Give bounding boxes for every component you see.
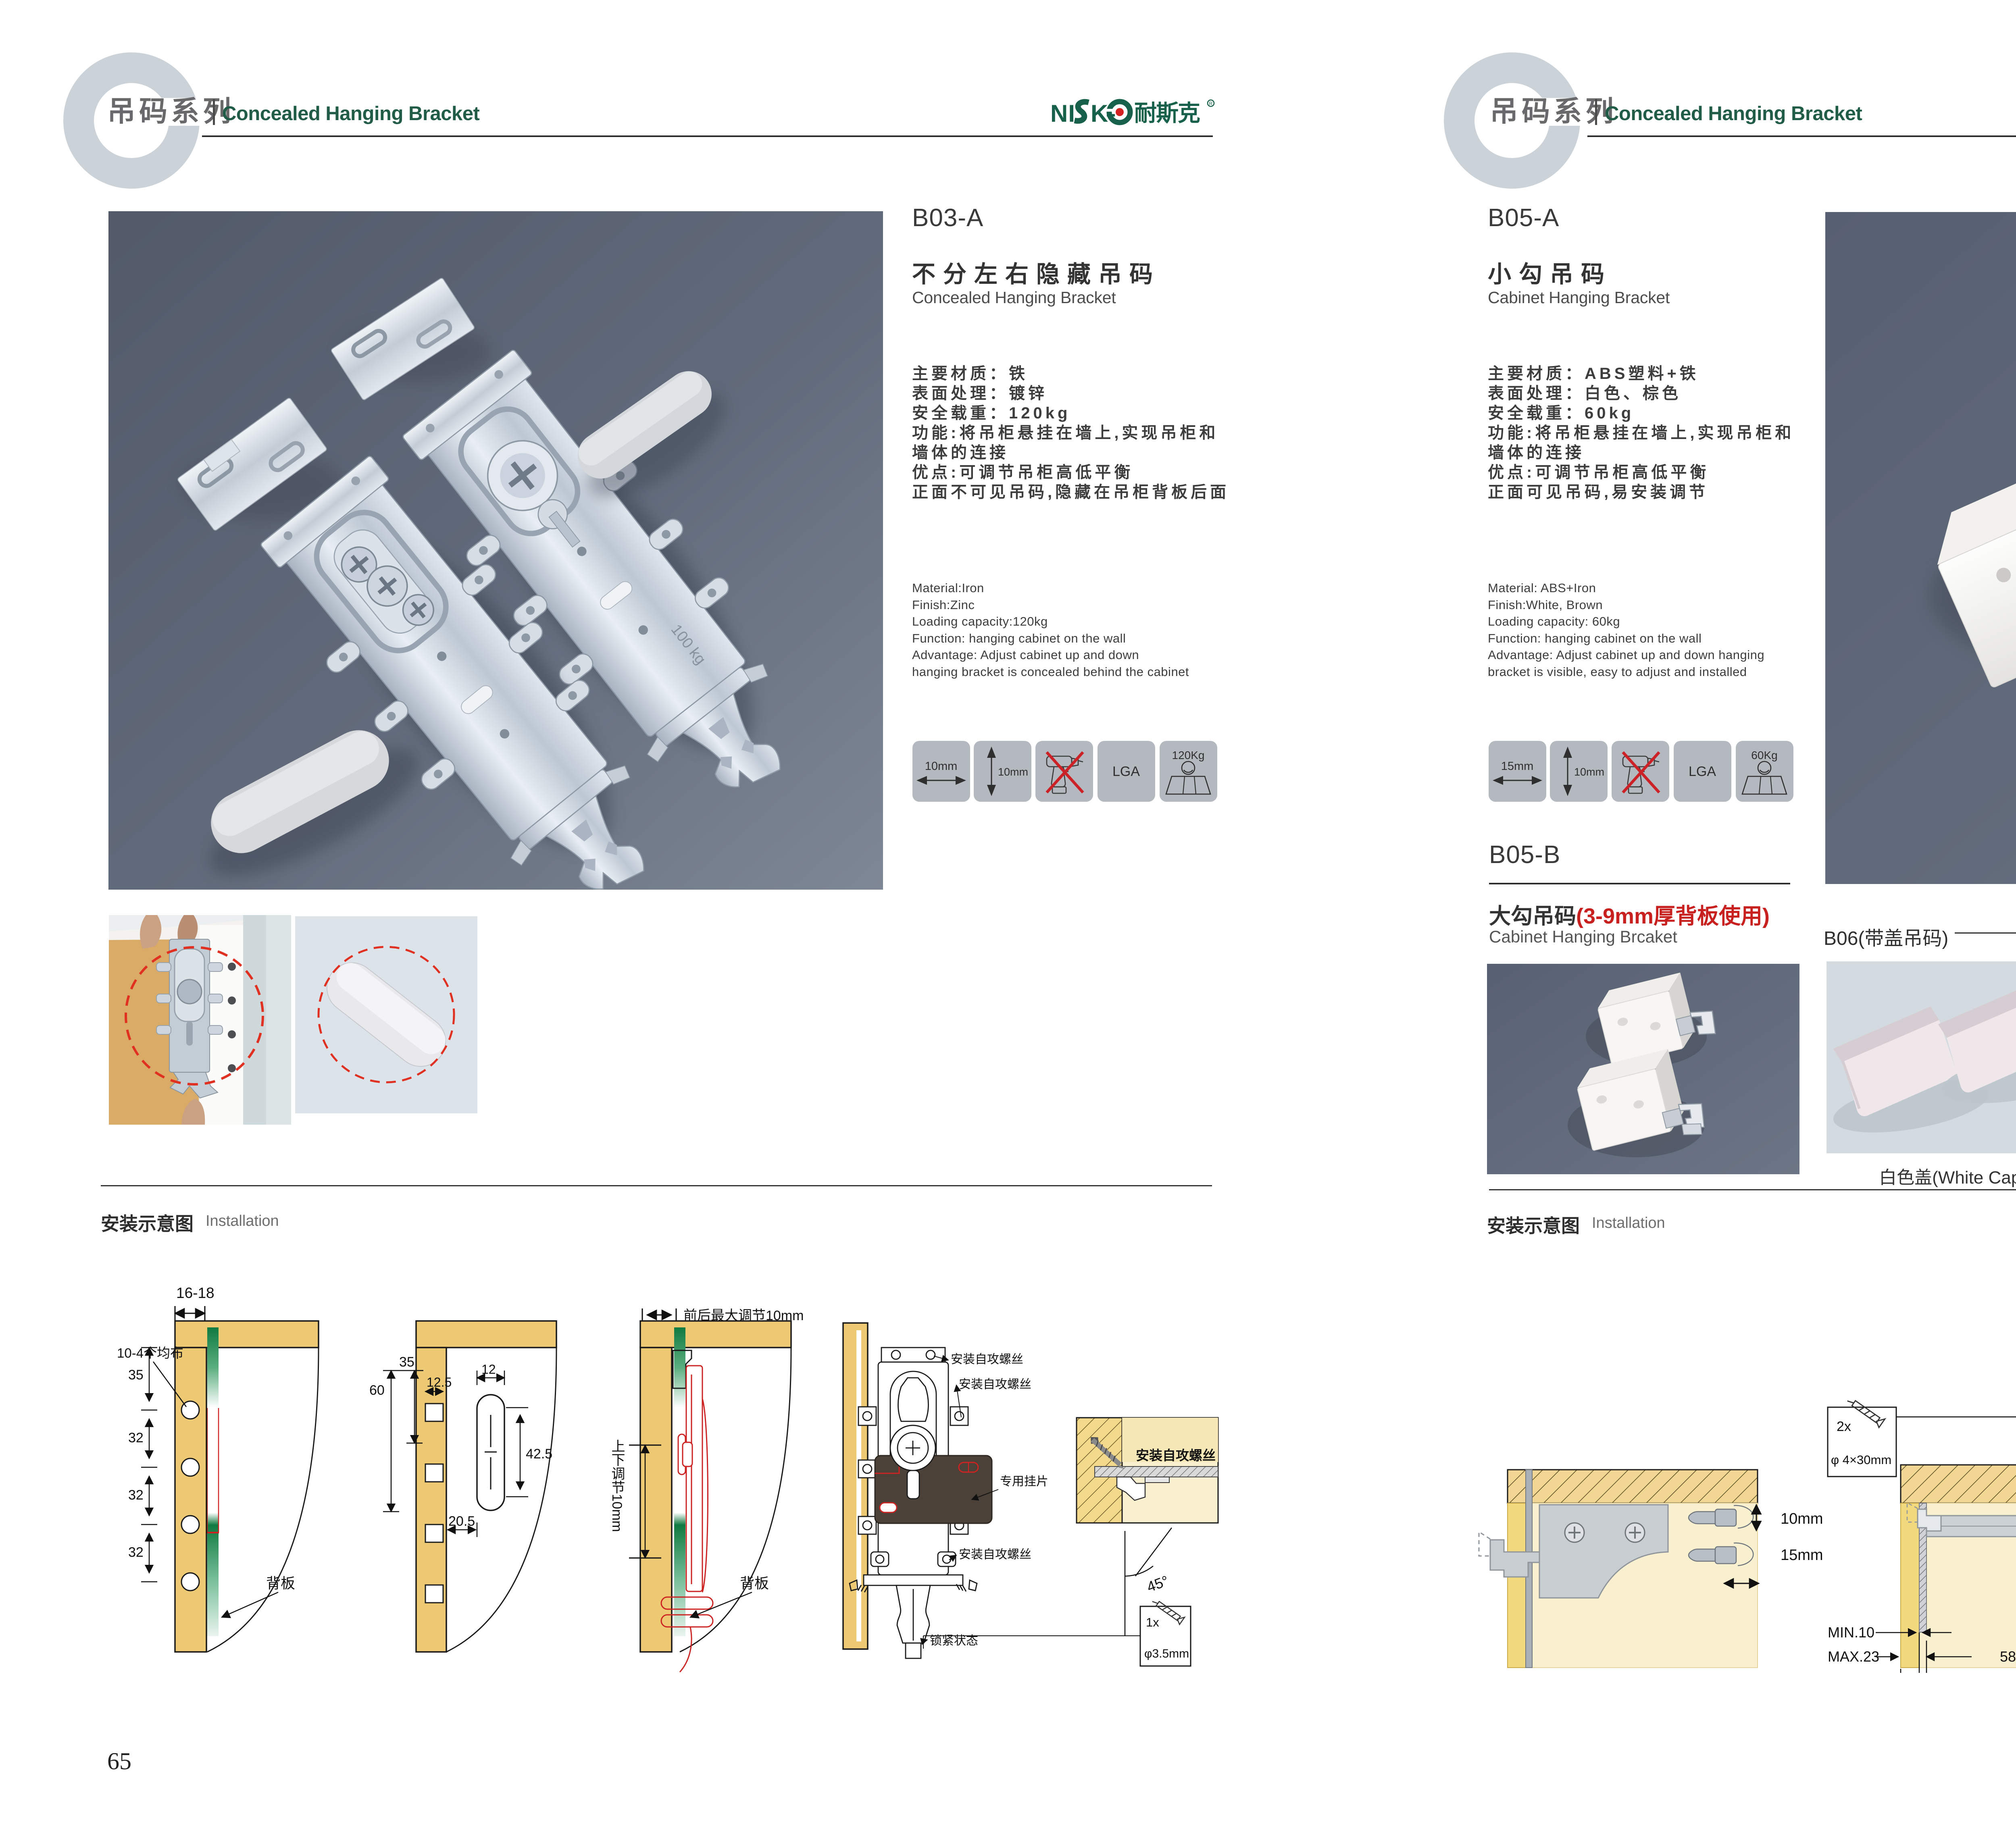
svg-text:60Kg: 60Kg [1751, 749, 1777, 761]
svg-text:耐斯克: 耐斯克 [1134, 100, 1200, 126]
svg-text:35: 35 [399, 1354, 414, 1370]
svg-text:安装自攻螺丝: 安装自攻螺丝 [1136, 1448, 1216, 1463]
svg-text:φ 4×30mm: φ 4×30mm [1831, 1453, 1891, 1467]
svg-text:45°: 45° [1145, 1572, 1171, 1595]
svg-text:32: 32 [128, 1545, 144, 1560]
svg-text:12.5: 12.5 [427, 1375, 452, 1389]
svg-text:60: 60 [369, 1383, 385, 1398]
svg-text:10mm: 10mm [998, 766, 1028, 778]
svg-text:上下调节10mm: 上下调节10mm [609, 1439, 625, 1532]
svg-text:10-4个均布: 10-4个均布 [117, 1346, 183, 1360]
svg-text:10mm: 10mm [925, 760, 958, 773]
svg-text:42.5: 42.5 [526, 1446, 552, 1462]
svg-text:MIN.10: MIN.10 [1828, 1624, 1874, 1641]
svg-text:58: 58 [2000, 1648, 2016, 1665]
svg-text:1x: 1x [1146, 1615, 1159, 1629]
svg-text:安装自攻螺丝: 安装自攻螺丝 [959, 1548, 1031, 1561]
svg-text:背板: 背板 [266, 1575, 295, 1591]
svg-text:120Kg: 120Kg [1172, 749, 1205, 761]
svg-text:φ3.5mm: φ3.5mm [1144, 1647, 1189, 1660]
svg-text:MAX.23: MAX.23 [1828, 1648, 1879, 1665]
svg-text:背板: 背板 [740, 1575, 769, 1591]
svg-text:12: 12 [481, 1362, 496, 1377]
svg-text:15mm: 15mm [1501, 760, 1534, 773]
svg-text:LGA: LGA [1689, 764, 1716, 779]
svg-text:35: 35 [128, 1367, 144, 1383]
svg-text:32: 32 [128, 1430, 144, 1446]
svg-text:16-18: 16-18 [176, 1285, 215, 1301]
svg-text:LGA: LGA [1112, 764, 1140, 779]
svg-text:专用挂片: 专用挂片 [1000, 1475, 1048, 1488]
svg-text:20.5: 20.5 [448, 1514, 475, 1529]
svg-text:安装自攻螺丝: 安装自攻螺丝 [959, 1378, 1031, 1391]
svg-text:15mm: 15mm [1781, 1547, 1823, 1564]
svg-text:K: K [1091, 100, 1108, 127]
svg-text:R: R [1209, 101, 1213, 106]
svg-text:NI: NI [1050, 100, 1075, 127]
svg-text:安装自攻螺丝: 安装自攻螺丝 [951, 1353, 1023, 1366]
svg-text:10mm: 10mm [1781, 1510, 1823, 1527]
svg-text:10mm: 10mm [1574, 766, 1604, 778]
svg-text:2x: 2x [1837, 1419, 1851, 1434]
svg-text:32: 32 [128, 1487, 144, 1503]
